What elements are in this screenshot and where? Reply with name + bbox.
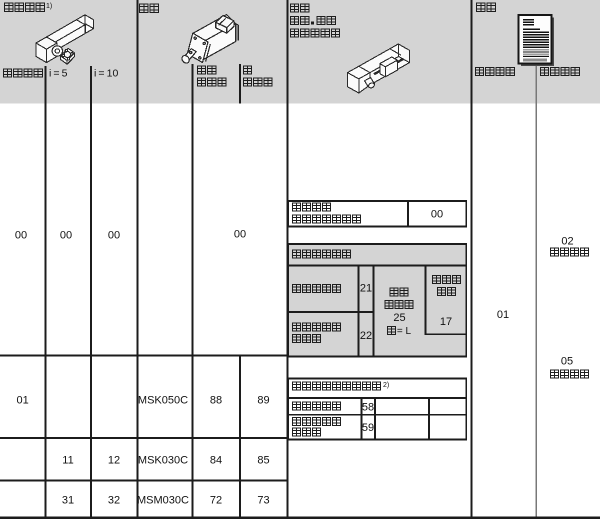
svg-text:11: 11 [62, 455, 73, 467]
svg-text:31: 31 [62, 495, 74, 507]
svg-text:25: 25 [393, 312, 405, 324]
svg-text:73: 73 [257, 495, 269, 507]
svg-text:00: 00 [15, 230, 27, 242]
svg-text:1): 1) [46, 3, 52, 10]
svg-text:MSK030C: MSK030C [138, 455, 188, 467]
svg-text:= L: = L [397, 326, 412, 337]
svg-text:22: 22 [360, 330, 372, 342]
svg-text:58: 58 [362, 402, 374, 414]
svg-text:00: 00 [431, 209, 443, 221]
svg-text:2): 2) [383, 382, 389, 389]
svg-text:84: 84 [210, 455, 222, 467]
svg-text:32: 32 [108, 495, 120, 507]
svg-text:i = 5: i = 5 [49, 67, 68, 79]
svg-text:MSM030C: MSM030C [137, 495, 189, 507]
svg-text:59: 59 [362, 422, 374, 434]
svg-text:12: 12 [108, 455, 120, 467]
svg-text:01: 01 [497, 309, 509, 321]
svg-text:i = 10: i = 10 [94, 67, 119, 79]
svg-text:00: 00 [108, 230, 120, 242]
svg-text:72: 72 [210, 495, 222, 507]
svg-text:89: 89 [257, 395, 269, 407]
svg-text:02: 02 [561, 236, 573, 248]
svg-text:17: 17 [440, 316, 452, 328]
svg-text:21: 21 [360, 283, 372, 295]
svg-text:88: 88 [210, 395, 222, 407]
svg-text:MSK050C: MSK050C [138, 395, 188, 407]
svg-text:05: 05 [561, 356, 573, 368]
svg-text:85: 85 [257, 455, 269, 467]
svg-text:00: 00 [234, 229, 246, 241]
svg-text:01: 01 [16, 395, 28, 407]
svg-text:00: 00 [60, 230, 72, 242]
